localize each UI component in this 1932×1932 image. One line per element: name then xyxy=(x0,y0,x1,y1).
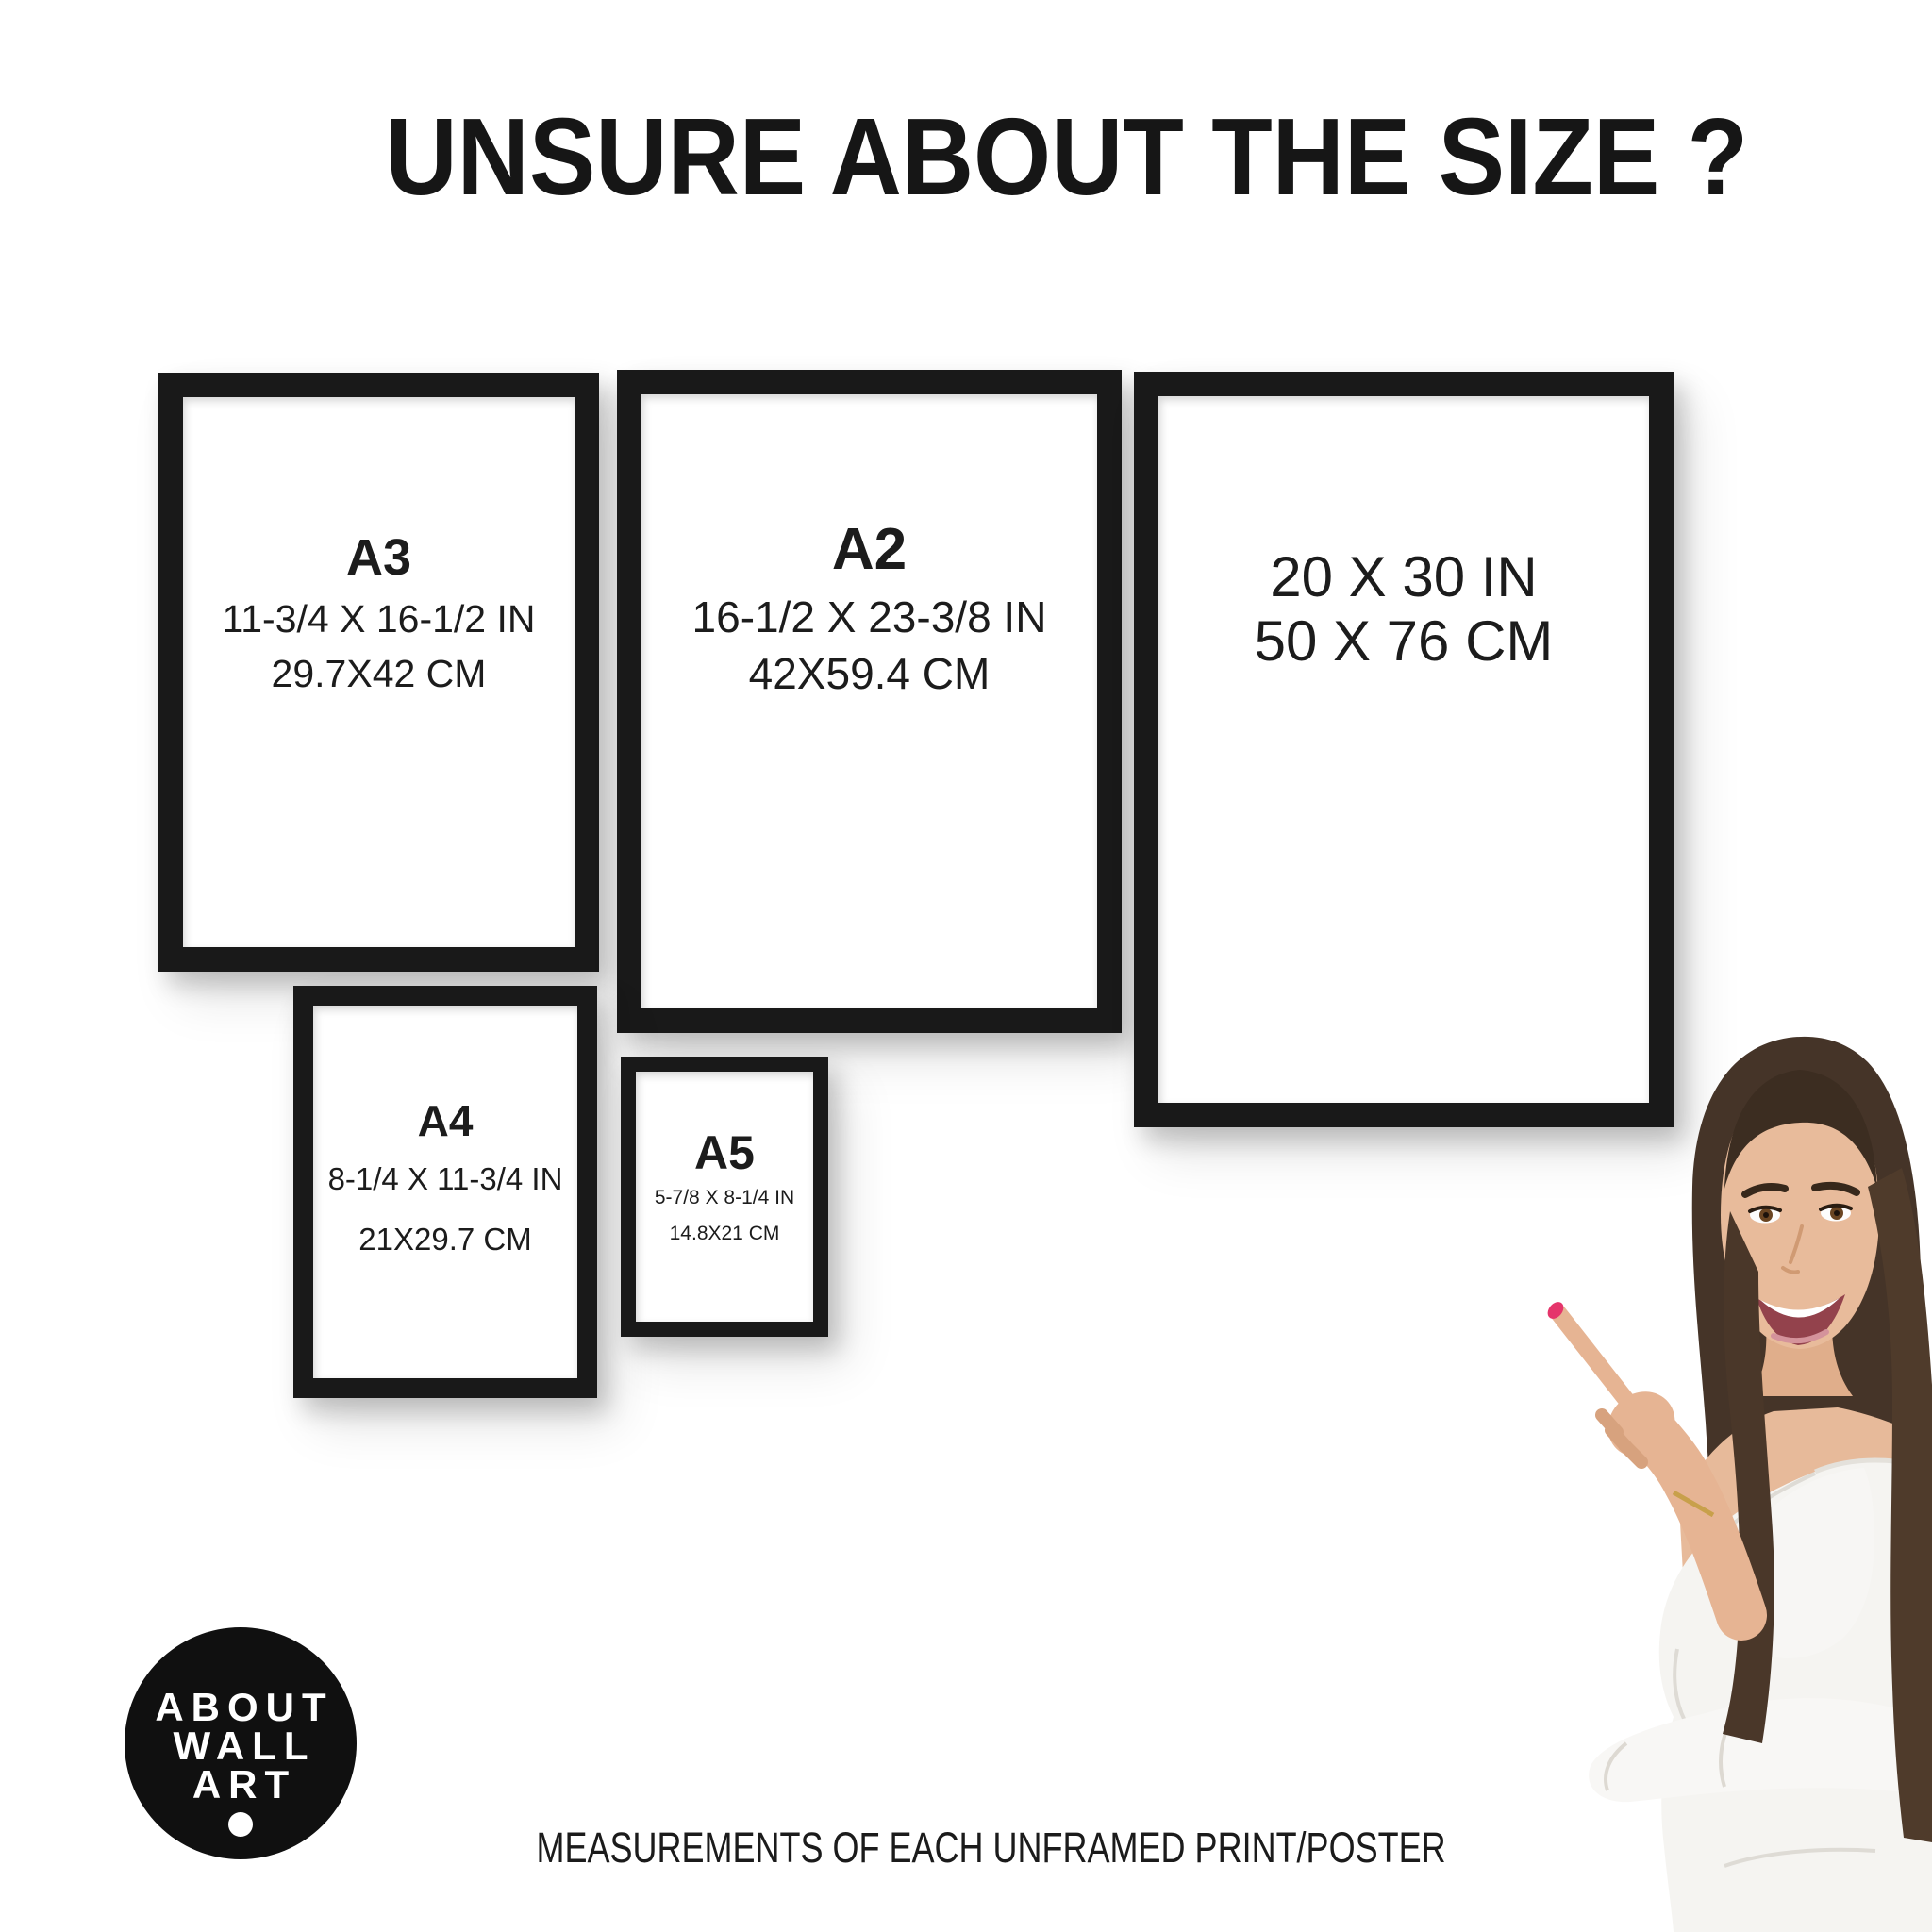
frame-a3-label: A3 xyxy=(183,529,575,586)
frame-a4-inches: 8-1/4 X 11-3/4 IN xyxy=(313,1160,577,1198)
frame-a2-label: A2 xyxy=(641,519,1097,581)
frame-a4-label: A4 xyxy=(313,1096,577,1145)
frame-20x30-inches: 20 X 30 IN xyxy=(1158,545,1649,609)
frame-a3-inches: 11-3/4 X 16-1/2 IN xyxy=(183,591,575,646)
page-title-text: UNSURE ABOUT THE SIZE ? xyxy=(385,100,1748,213)
frame-a2-cm: 42X59.4 CM xyxy=(641,645,1097,702)
caption: MEASUREMENTS OF EACH UNFRAMED PRINT/POST… xyxy=(423,1824,1366,1872)
frame-a5: A5 5-7/8 X 8-1/4 IN 14.8X21 CM xyxy=(621,1057,828,1337)
size-guide-poster: UNSURE ABOUT THE SIZE ? A3 11-3/4 X 16-1… xyxy=(0,0,1932,1932)
frame-a5-label: A5 xyxy=(636,1128,813,1177)
frame-20x30-cm: 50 X 76 CM xyxy=(1158,609,1649,674)
logo-line-wall: WALL xyxy=(125,1726,357,1765)
frame-a4-cm: 21X29.7 CM xyxy=(313,1221,577,1258)
frame-a2-inches: 16-1/2 X 23-3/8 IN xyxy=(641,589,1097,645)
frame-a3: A3 11-3/4 X 16-1/2 IN 29.7X42 CM xyxy=(158,373,599,972)
frame-a5-inches: 5-7/8 X 8-1/4 IN xyxy=(636,1185,813,1211)
logo-line-about: ABOUT xyxy=(125,1688,357,1726)
logo-dot xyxy=(228,1812,253,1837)
logo-line-art: ART xyxy=(125,1765,357,1804)
frame-a5-cm: 14.8X21 CM xyxy=(636,1221,813,1247)
model-photo xyxy=(1441,989,1932,1932)
frame-a3-cm: 29.7X42 CM xyxy=(183,646,575,701)
frame-a2: A2 16-1/2 X 23-3/8 IN 42X59.4 CM xyxy=(617,370,1122,1033)
page-title: UNSURE ABOUT THE SIZE ? xyxy=(318,100,1686,213)
frame-a4: A4 8-1/4 X 11-3/4 IN 21X29.7 CM xyxy=(293,986,597,1398)
brand-logo: ABOUT WALL ART xyxy=(125,1627,357,1859)
caption-text: MEASUREMENTS OF EACH UNFRAMED PRINT/POST… xyxy=(537,1824,1446,1872)
